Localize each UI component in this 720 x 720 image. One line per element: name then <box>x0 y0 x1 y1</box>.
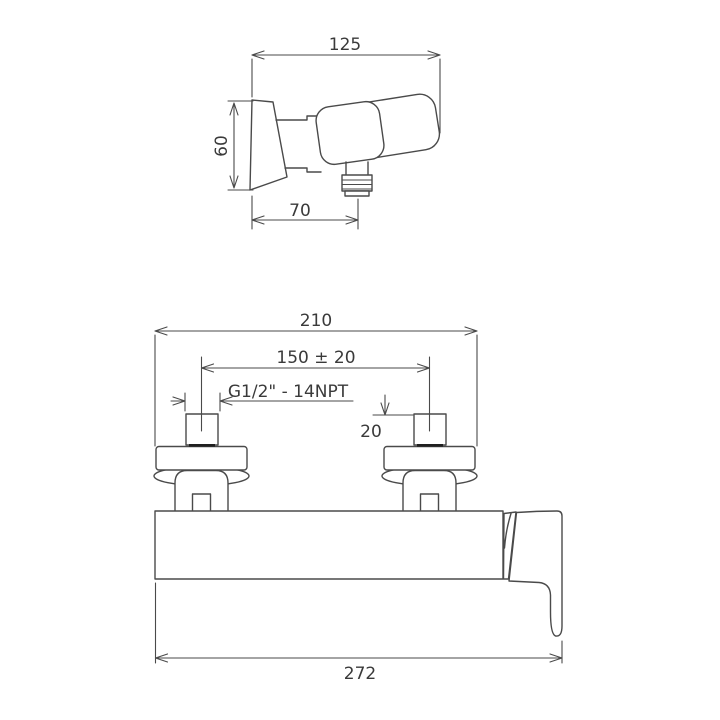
outlet-neck <box>346 162 368 175</box>
dimension-nut-depth: 20 <box>360 395 413 442</box>
front-total-width-dimension-label: 272 <box>344 664 376 684</box>
lever-handle <box>509 511 562 636</box>
dimension-side-height: 60 <box>212 101 253 190</box>
hose-outlet <box>342 162 372 196</box>
extension-line <box>156 583 563 663</box>
side-height-dimension-label: 60 <box>212 135 232 157</box>
side-width-dimension-label: 125 <box>329 35 361 55</box>
mixer-body <box>155 511 503 579</box>
union-connector <box>403 471 456 512</box>
front-connection-centers-dimension-label: 150 ± 20 <box>276 348 355 368</box>
shower-mixer-technical-drawing: 125 60 70 <box>0 0 720 720</box>
extension-line <box>185 393 220 411</box>
dimension-front-total-width: 272 <box>156 583 563 684</box>
union-cover <box>384 447 475 471</box>
dimension-side-outlet-offset: 70 <box>252 196 358 229</box>
technical-drawing-page: 125 60 70 <box>0 0 720 720</box>
front-overall-width-dimension-label: 210 <box>300 311 332 331</box>
stem-bottom-edge <box>285 168 321 172</box>
union-cover <box>156 447 247 471</box>
front-view: 210 150 ± 20 G1/2" - 14NPT 20 <box>154 311 562 684</box>
side-outlet-offset-dimension-label: 70 <box>289 201 311 221</box>
holder-front-block <box>314 100 385 166</box>
union-connector <box>175 471 228 512</box>
front-nut-depth-dimension-label: 20 <box>360 422 382 442</box>
side-view: 125 60 70 <box>212 35 442 229</box>
wall-escutcheon <box>250 100 287 190</box>
stem-top-edge <box>276 116 321 120</box>
thread-spec-label: G1/2" - 14NPT <box>228 382 349 402</box>
dimension-thread-spec: G1/2" - 14NPT <box>171 382 353 411</box>
outlet-thread-lip <box>345 191 369 196</box>
